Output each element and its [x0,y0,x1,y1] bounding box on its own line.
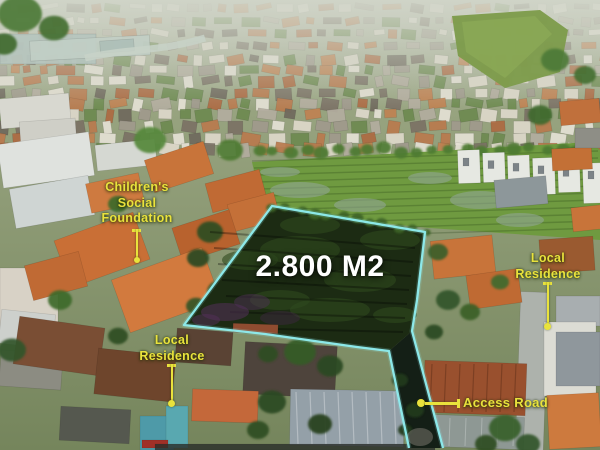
access-road-pointer-line [425,402,458,405]
local-residence-left-pointer-dot [168,400,175,407]
children-foundation-line1: Children's [57,180,217,196]
plot-area-size-label: 2.800 M2 [240,250,400,284]
local-residence-left-pointer-line [171,364,174,401]
children-foundation-pointer-dot [134,257,140,263]
local-residence-right-line2: Residence [488,267,600,283]
access-road-pointer-cap [457,399,460,408]
local-residence-right-pointer-line [547,282,550,324]
access-road-pointer-dot [417,399,425,407]
children-foundation-line2: Social [57,196,217,212]
local-residence-left-label: Local Residence [112,333,232,364]
local-residence-right-label: Local Residence [488,251,600,282]
children-foundation-pointer-line [136,229,139,258]
children-foundation-line3: Foundation [57,211,217,227]
children-social-foundation-label: Children's Social Foundation [57,180,217,227]
access-road-label: Access Road [463,395,548,411]
local-residence-left-line1: Local [112,333,232,349]
local-residence-right-pointer-dot [544,323,551,330]
local-residence-right-line1: Local [488,251,600,267]
local-residence-left-line2: Residence [112,349,232,365]
aerial-photo-annotation: 2.800 M2 Children's Social Foundation Lo… [0,0,600,450]
